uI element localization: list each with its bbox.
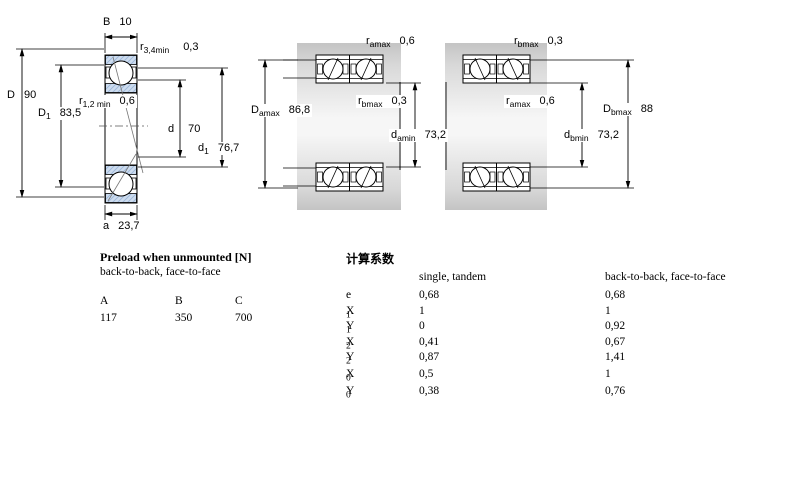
bearing-datasheet: B10 r3,4min0,3 D90 D183,5 r1,2 min0,6 d7… <box>0 0 800 500</box>
dim-label-rbmax-a: rbmax0,3 <box>356 95 409 108</box>
dim-label-rbmax-b: rbmax0,3 <box>514 35 563 48</box>
dim-label-r12min: r1,2 min0,6 <box>77 95 137 108</box>
dim-label-D: D90 <box>7 89 36 102</box>
preload-subtitle: back-to-back, face-to-face <box>100 266 221 278</box>
dim-label-D1: D183,5 <box>36 107 83 120</box>
preload-value-c: 700 <box>235 312 252 324</box>
preload-col-c: C <box>235 295 243 307</box>
preload-col-b: B <box>175 295 183 307</box>
preload-col-a: A <box>100 295 108 307</box>
preload-value-b: 350 <box>175 312 192 324</box>
right-arrangement-drawing <box>445 43 634 210</box>
dim-label-r34min: r3,4min0,3 <box>140 41 198 54</box>
factors-title: 计算系数 <box>346 250 394 267</box>
preload-value-a: 117 <box>100 312 117 324</box>
middle-arrangement-drawing <box>258 43 421 210</box>
dim-label-dbmin: dbmin73,2 <box>562 129 621 142</box>
dim-label-a: a23,7 <box>103 220 140 233</box>
preload-title: Preload when unmounted [N] <box>100 250 251 265</box>
dim-label-damin: damin73,2 <box>389 129 448 142</box>
dim-label-Dbmax: Dbmax88 <box>601 103 655 116</box>
factors-col2-header: back-to-back, face-to-face <box>605 271 726 283</box>
dim-label-ramax-a: ramax0,6 <box>366 35 415 48</box>
dim-label-d1: d176,7 <box>196 142 241 155</box>
dim-label-Damax: Damax86,8 <box>249 104 312 117</box>
dim-label-d: d70 <box>168 123 200 136</box>
factors-col1-header: single, tandem <box>419 271 486 283</box>
dim-label-ramax-b: ramax0,6 <box>504 95 557 108</box>
dim-label-B: B10 <box>103 16 132 29</box>
